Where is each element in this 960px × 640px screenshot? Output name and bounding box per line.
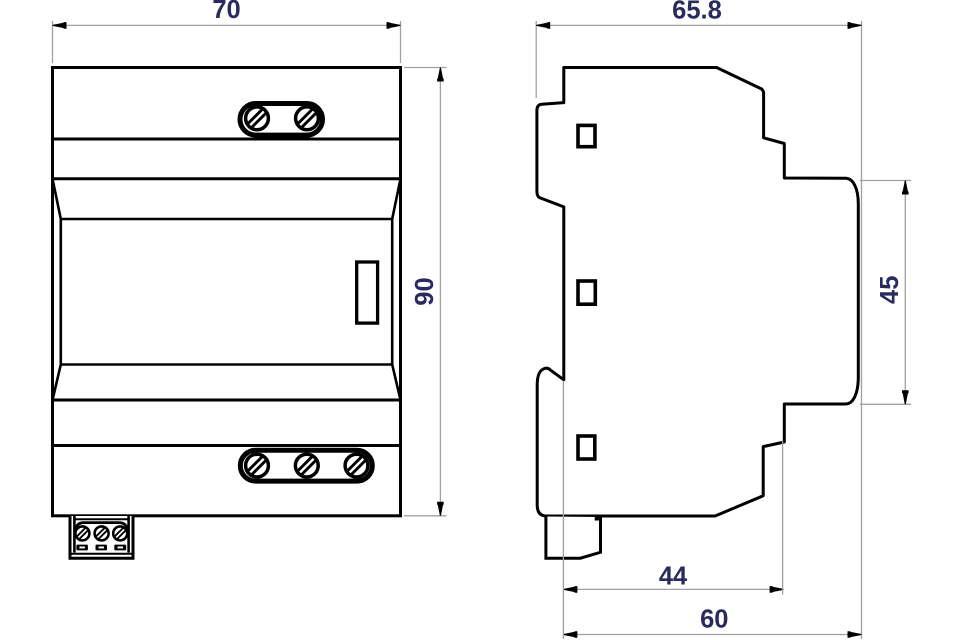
svg-text:60: 60 bbox=[700, 605, 728, 633]
svg-text:44: 44 bbox=[659, 563, 688, 591]
svg-text:70: 70 bbox=[212, 0, 240, 24]
svg-text:65.8: 65.8 bbox=[672, 0, 722, 24]
svg-text:90: 90 bbox=[411, 277, 439, 305]
svg-text:45: 45 bbox=[876, 276, 904, 304]
